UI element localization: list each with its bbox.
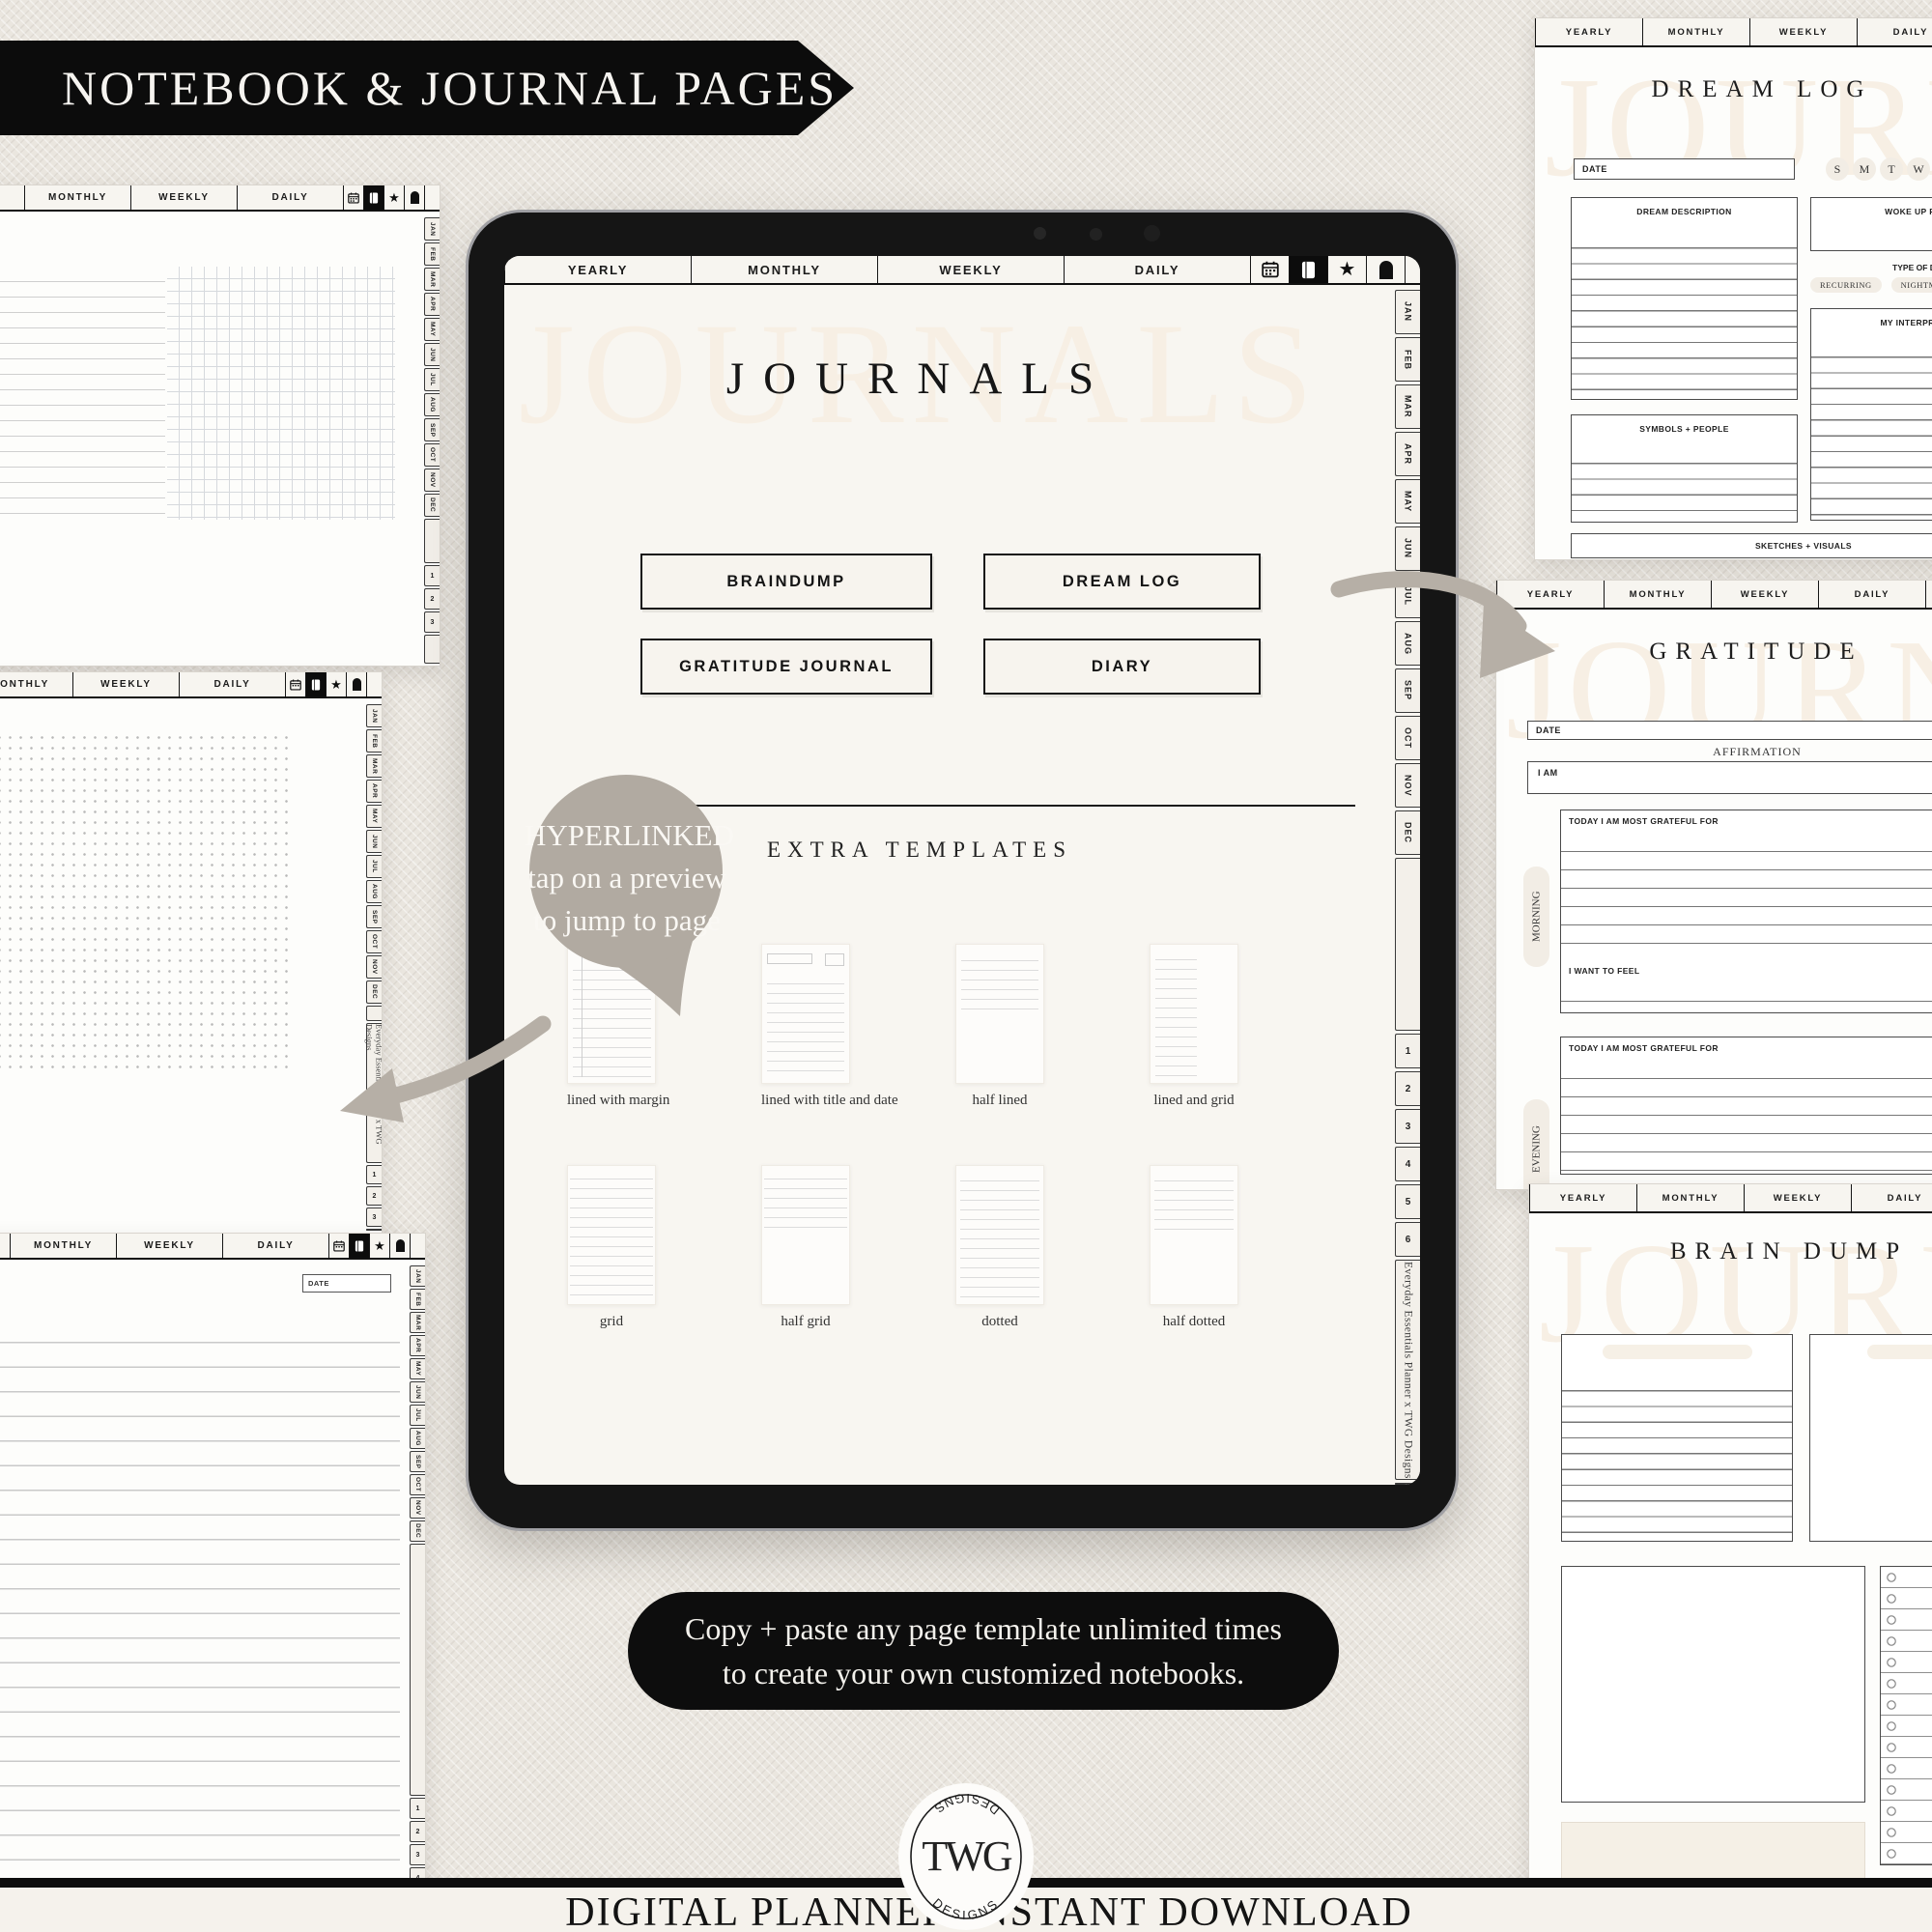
template-caption: lined with title and date: [761, 1093, 850, 1109]
weekday-circle[interactable]: W: [1907, 157, 1930, 181]
planner-tab[interactable]: MONTHLY: [691, 256, 877, 283]
planner-tabs: YEARLYMONTHLYWEEKLYDAILY: [0, 185, 343, 210]
month-tab[interactable]: OCT: [410, 1474, 425, 1495]
planner-tab[interactable]: DAILY: [237, 185, 343, 210]
number-tab[interactable]: 6: [1395, 1222, 1420, 1257]
number-tab[interactable]: 1: [1395, 1034, 1420, 1068]
planner-tab-bar: YEARLYMONTHLYWEEKLYDAILY: [1529, 1184, 1932, 1213]
calendar-icon[interactable]: [285, 672, 305, 696]
star-icon[interactable]: ★: [1327, 256, 1366, 283]
tab-bar-filler: [1925, 581, 1932, 608]
bookmark-icon[interactable]: [404, 185, 424, 210]
month-tab[interactable]: NOV: [1395, 763, 1420, 808]
planner-tab[interactable]: WEEKLY: [1711, 581, 1818, 608]
star-icon[interactable]: ★: [384, 185, 404, 210]
planner-tab-bar: YEARLYMONTHLYWEEKLYDAILY ★: [0, 185, 440, 212]
month-tab[interactable]: FEB: [366, 729, 382, 753]
planner-tab-bar: YEARLYMONTHLYWEEKLYDAILY: [1496, 581, 1932, 610]
planner-tab[interactable]: YEARLY: [0, 185, 24, 210]
calendar-icon[interactable]: [328, 1234, 349, 1258]
planner-tab[interactable]: MONTHLY: [1642, 18, 1749, 45]
planner-tab-bar: YEARLYMONTHLYWEEKLYDAILY: [1535, 18, 1932, 47]
star-icon[interactable]: ★: [369, 1234, 389, 1258]
month-tab[interactable]: DEC: [424, 494, 440, 517]
template-preview[interactable]: dotted: [955, 1165, 1044, 1330]
number-tab[interactable]: 1: [410, 1798, 425, 1819]
month-tab[interactable]: OCT: [424, 443, 440, 467]
template-caption: half dotted: [1150, 1314, 1238, 1330]
month-tab[interactable]: NOV: [424, 469, 440, 492]
planner-tab[interactable]: DAILY: [1818, 581, 1925, 608]
bubble-line-2: tap on a preview: [525, 857, 729, 899]
month-tab[interactable]: MAY: [1395, 479, 1420, 524]
number-tab[interactable]: 2: [410, 1821, 425, 1842]
month-tab[interactable]: MAR: [424, 268, 440, 291]
template-caption: dotted: [955, 1314, 1044, 1330]
weekday-circle[interactable]: M: [1853, 157, 1876, 181]
gratitude-journal-button[interactable]: GRATITUDE JOURNAL: [640, 639, 932, 695]
month-tab[interactable]: JUL: [410, 1405, 425, 1426]
note-line-1: Copy + paste any page template unlimited…: [685, 1606, 1282, 1651]
month-tab[interactable]: JAN: [410, 1265, 425, 1287]
evening-grateful-box: TODAY I AM MOST GRATEFUL FOR: [1560, 1037, 1932, 1175]
number-tab[interactable]: 2: [1395, 1071, 1420, 1106]
tab-bar-spacer: [366, 672, 382, 696]
number-tab[interactable]: 1: [424, 565, 440, 586]
woke-up-feeling-box: WOKE UP FEELING: [1810, 197, 1932, 251]
planner-tab[interactable]: WEEKLY: [72, 672, 179, 696]
month-tab[interactable]: MAR: [1395, 384, 1420, 429]
planner-tab[interactable]: YEARLY: [504, 256, 691, 283]
camera-dots: [1034, 227, 1046, 240]
planner-tab[interactable]: DAILY: [222, 1234, 328, 1258]
month-tab[interactable]: NOV: [410, 1497, 425, 1519]
month-tab[interactable]: APR: [410, 1335, 425, 1356]
hyperlinked-note: HYPERLINKED tap on a preview to jump to …: [525, 814, 729, 942]
calendar-icon[interactable]: [1250, 256, 1289, 283]
template-caption: lined and grid: [1150, 1093, 1238, 1109]
highlight-bar: [1603, 1345, 1752, 1359]
planner-tab[interactable]: WEEKLY: [130, 185, 237, 210]
weekday-circle[interactable]: T: [1880, 157, 1903, 181]
template-preview[interactable]: half grid: [761, 1165, 850, 1330]
month-tab[interactable]: JAN: [424, 217, 440, 241]
tab-bar-spacer: [424, 185, 440, 210]
month-tab[interactable]: APR: [424, 293, 440, 316]
notebook-icon[interactable]: [1289, 256, 1327, 283]
planner-tab-bar: YEARLYMONTHLYWEEKLYDAILY ★: [0, 1234, 425, 1260]
month-tab[interactable]: MAR: [410, 1312, 425, 1333]
section-divider: [582, 805, 1355, 807]
month-tab[interactable]: NOV: [366, 955, 382, 979]
month-tab[interactable]: MAR: [366, 754, 382, 778]
type-of-dream-label: TYPE OF DREAM: [1810, 263, 1932, 272]
month-tab[interactable]: AUG: [1395, 621, 1420, 666]
month-tab[interactable]: AUG: [410, 1428, 425, 1449]
notebook-icon[interactable]: [305, 672, 326, 696]
notebook-icon[interactable]: [363, 185, 384, 210]
star-icon[interactable]: ★: [326, 672, 346, 696]
copy-paste-note: Copy + paste any page template unlimited…: [628, 1592, 1339, 1710]
month-tab-rail: JANFEBMARAPRMAYJUNJULAUGSEPOCTNOVDEC 123…: [1395, 285, 1420, 1485]
open-box: [1561, 1566, 1865, 1803]
month-tab[interactable]: SEP: [424, 418, 440, 441]
twg-designs-logo: DESIGNS DESIGNS TWG: [896, 1782, 1036, 1932]
preview-page-dotted: YEARLYMONTHLYWEEKLYDAILY ★ JANFEBMARAPRM…: [0, 671, 383, 1234]
highlight-bar: [1867, 1345, 1932, 1359]
month-tab[interactable]: JUN: [424, 343, 440, 366]
preview-page-lined-date: YEARLYMONTHLYWEEKLYDAILY ★ DATE JANFEBMA…: [0, 1233, 426, 1915]
planner-tab[interactable]: MONTHLY: [1604, 581, 1711, 608]
date-field[interactable]: DATE: [1574, 158, 1795, 180]
dream-type-pill[interactable]: NIGHTMARE: [1891, 277, 1932, 293]
month-tab[interactable]: JAN: [366, 704, 382, 727]
i-am-field[interactable]: I AM: [1527, 761, 1932, 794]
month-tab[interactable]: APR: [366, 780, 382, 803]
journals-title: JOURNALS: [504, 353, 1335, 405]
notes-box-blank: [1809, 1334, 1932, 1542]
credit-tab: Everyday Essentials Planner x TWG Design…: [1395, 1260, 1420, 1480]
planner-tab[interactable]: WEEKLY: [1749, 18, 1857, 45]
month-tab[interactable]: SEP: [410, 1451, 425, 1472]
planner-tab[interactable]: MONTHLY: [1636, 1184, 1744, 1211]
month-tab[interactable]: SEP: [366, 905, 382, 928]
interpretation-box: MY INTERPRETATION: [1810, 308, 1932, 521]
month-tab[interactable]: MAY: [424, 318, 440, 341]
month-tab[interactable]: AUG: [366, 880, 382, 903]
planner-tab[interactable]: WEEKLY: [1744, 1184, 1851, 1211]
month-tab-rail: JANFEBMARAPRMAYJUNJULAUGSEPOCTNOVDEC 123: [424, 212, 440, 666]
month-tab[interactable]: MAY: [366, 805, 382, 828]
tab-bar-spacer: [1405, 256, 1420, 283]
bookmark-icon[interactable]: [1366, 256, 1405, 283]
bookmark-icon[interactable]: [389, 1234, 410, 1258]
template-preview[interactable]: lined with margin: [567, 944, 656, 1109]
number-tab[interactable]: 3: [1395, 1109, 1420, 1144]
template-caption: grid: [567, 1314, 656, 1330]
diary-button[interactable]: DIARY: [983, 639, 1261, 695]
sketches-visuals-box: SKETCHES + VISUALS: [1571, 533, 1932, 558]
month-tab[interactable]: JUL: [1395, 574, 1420, 618]
logo-monogram: TWG: [922, 1833, 1011, 1880]
planner-tab-bar: YEARLYMONTHLYWEEKLYDAILY ★: [0, 672, 382, 698]
banner-title: NOTEBOOK & JOURNAL PAGES: [62, 60, 838, 116]
planner-tab[interactable]: WEEKLY: [116, 1234, 222, 1258]
template-caption: half grid: [761, 1314, 850, 1330]
bookmark-icon[interactable]: [346, 672, 366, 696]
blank-tab: [424, 519, 440, 563]
number-tab[interactable]: 3: [366, 1207, 382, 1227]
planner-tab[interactable]: MONTHLY: [0, 672, 72, 696]
planner-tab[interactable]: DAILY: [1857, 18, 1932, 45]
template-preview[interactable]: half dotted: [1150, 1165, 1238, 1330]
bubble-line-1: HYPERLINKED: [525, 814, 729, 857]
month-tab-rail: JANFEBMARAPRMAYJUNJULAUGSEPOCTNOVDEC Eve…: [366, 698, 382, 1233]
month-tab[interactable]: AUG: [424, 393, 440, 416]
dream-type-pills: RECURRINGNIGHTMARE: [1810, 277, 1932, 293]
note-line-2: to create your own customized notebooks.: [723, 1651, 1244, 1695]
journal-watermark: JOURNALS: [1545, 45, 1932, 210]
template-grid: lined with margin lined with title and d…: [567, 944, 1238, 1330]
planner-tab[interactable]: YEARLY: [1535, 18, 1642, 45]
grid-area: [167, 267, 395, 520]
blank-tab: [410, 1544, 425, 1796]
month-tab[interactable]: FEB: [424, 242, 440, 266]
blank-tab: [1395, 1483, 1420, 1485]
page-title: GRATITUDE: [1496, 639, 1932, 666]
dream-log-button[interactable]: DREAM LOG: [983, 554, 1261, 610]
month-tab[interactable]: MAY: [410, 1358, 425, 1379]
bubble-line-3: to jump to page: [525, 899, 729, 942]
notes-box-lined: [1561, 1334, 1793, 1542]
template-preview[interactable]: lined and grid: [1150, 944, 1238, 1109]
month-tab-rail: JANFEBMARAPRMAYJUNJULAUGSEPOCTNOVDEC 123…: [410, 1260, 425, 1914]
affirmation-label: AFFIRMATION: [1496, 745, 1932, 759]
braindump-button[interactable]: BRAINDUMP: [640, 554, 932, 610]
month-tab[interactable]: DEC: [366, 980, 382, 1004]
blank-tab: [424, 635, 440, 664]
preview-page-dream-log: YEARLYMONTHLYWEEKLYDAILY JOURNALS DREAM …: [1534, 17, 1932, 560]
number-tab[interactable]: 3: [424, 611, 440, 633]
dream-description-box: DREAM DESCRIPTION: [1571, 197, 1798, 400]
evening-pill: EVENING: [1523, 1099, 1549, 1190]
weekday-circles: SMTW: [1826, 157, 1930, 181]
planner-tab[interactable]: DAILY: [1064, 256, 1250, 283]
blank-tab: [1395, 858, 1420, 1031]
month-tab[interactable]: JUL: [366, 855, 382, 878]
planner-tab[interactable]: WEEKLY: [877, 256, 1064, 283]
month-tab[interactable]: JUN: [366, 830, 382, 853]
month-tab[interactable]: DEC: [1395, 810, 1420, 855]
template-preview[interactable]: grid: [567, 1165, 656, 1330]
planner-tab[interactable]: DAILY: [179, 672, 285, 696]
month-tab[interactable]: JUN: [1395, 526, 1420, 571]
notebook-icon[interactable]: [349, 1234, 369, 1258]
number-tab[interactable]: 5: [1395, 1184, 1420, 1219]
lined-area: [0, 1319, 400, 1894]
morning-grateful-box: TODAY I AM MOST GRATEFUL FOR I WANT TO F…: [1560, 810, 1932, 1013]
dot-grid-area: [0, 732, 291, 1068]
number-tab[interactable]: 2: [366, 1186, 382, 1206]
month-tab[interactable]: OCT: [1395, 716, 1420, 760]
date-field[interactable]: DATE: [1527, 721, 1932, 740]
template-caption: half lined: [955, 1093, 1044, 1109]
poster-canvas: YEARLYMONTHLYWEEKLYDAILY ★ JANFEBMARAPRM…: [0, 0, 1932, 1932]
calendar-icon[interactable]: [343, 185, 363, 210]
number-tab[interactable]: 2: [424, 588, 440, 610]
planner-tab[interactable]: MONTHLY: [10, 1234, 116, 1258]
month-tab[interactable]: APR: [1395, 432, 1420, 476]
month-tab[interactable]: JAN: [1395, 290, 1420, 334]
preview-page-gratitude: YEARLYMONTHLYWEEKLYDAILY JOURNALS GRATIT…: [1495, 580, 1932, 1190]
lined-area: [0, 267, 165, 520]
month-tab[interactable]: FEB: [410, 1289, 425, 1310]
planner-tab[interactable]: YEARLY: [0, 1234, 10, 1258]
dream-type-pill[interactable]: RECURRING: [1810, 277, 1882, 293]
template-caption: lined with margin: [567, 1093, 656, 1109]
planner-tab[interactable]: DAILY: [1851, 1184, 1932, 1211]
tab-bar-spacer: [410, 1234, 425, 1258]
preview-page-brain-dump: YEARLYMONTHLYWEEKLYDAILY JOURNALS BRAIN …: [1528, 1183, 1932, 1932]
template-preview[interactable]: lined with title and date: [761, 944, 850, 1109]
number-tab[interactable]: 1: [366, 1165, 382, 1184]
template-preview[interactable]: half lined: [955, 944, 1044, 1109]
planner-tab[interactable]: YEARLY: [1496, 581, 1604, 608]
month-tab[interactable]: DEC: [410, 1520, 425, 1542]
page-title: DREAM LOG: [1535, 76, 1932, 103]
planner-tab-bar: YEARLYMONTHLYWEEKLYDAILY ★: [504, 256, 1420, 285]
symbols-people-box: SYMBOLS + PEOPLE: [1571, 414, 1798, 523]
preview-page-lined-grid: YEARLYMONTHLYWEEKLYDAILY ★ JANFEBMARAPRM…: [0, 185, 440, 667]
planner-tab[interactable]: MONTHLY: [24, 185, 130, 210]
number-tab[interactable]: 3: [410, 1844, 425, 1865]
planner-tab[interactable]: YEARLY: [1529, 1184, 1636, 1211]
checklist-box: [1880, 1566, 1932, 1865]
month-tab[interactable]: OCT: [366, 930, 382, 953]
month-tab[interactable]: FEB: [1395, 337, 1420, 382]
weekday-circle[interactable]: S: [1826, 157, 1849, 181]
morning-pill: MORNING: [1523, 867, 1549, 967]
page-title: BRAIN DUMP: [1529, 1238, 1932, 1265]
blank-tab: [366, 1006, 382, 1021]
month-tab[interactable]: SEP: [1395, 668, 1420, 713]
date-field[interactable]: DATE: [302, 1274, 391, 1293]
title-banner: NOTEBOOK & JOURNAL PAGES: [0, 41, 854, 135]
number-tab[interactable]: 4: [1395, 1147, 1420, 1181]
blank-tab: [366, 1229, 382, 1231]
month-tab[interactable]: JUL: [424, 368, 440, 391]
month-tab[interactable]: JUN: [410, 1381, 425, 1403]
credit-tab: Everyday Essentials Planner x TWG Design…: [366, 1023, 382, 1163]
